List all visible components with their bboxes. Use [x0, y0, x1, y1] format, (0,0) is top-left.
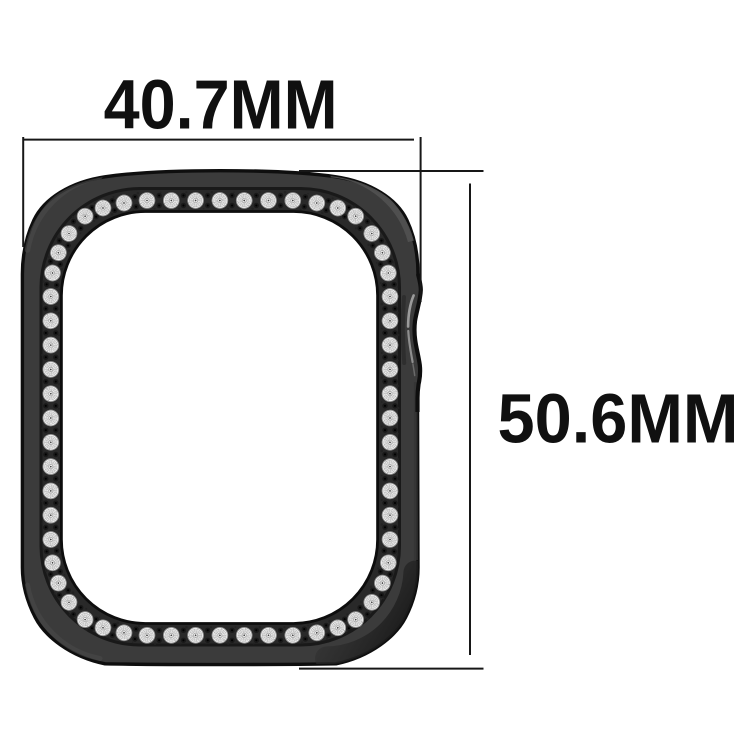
- svg-text:50.6MM: 50.6MM: [498, 379, 739, 457]
- svg-text:40.7MM: 40.7MM: [104, 65, 338, 143]
